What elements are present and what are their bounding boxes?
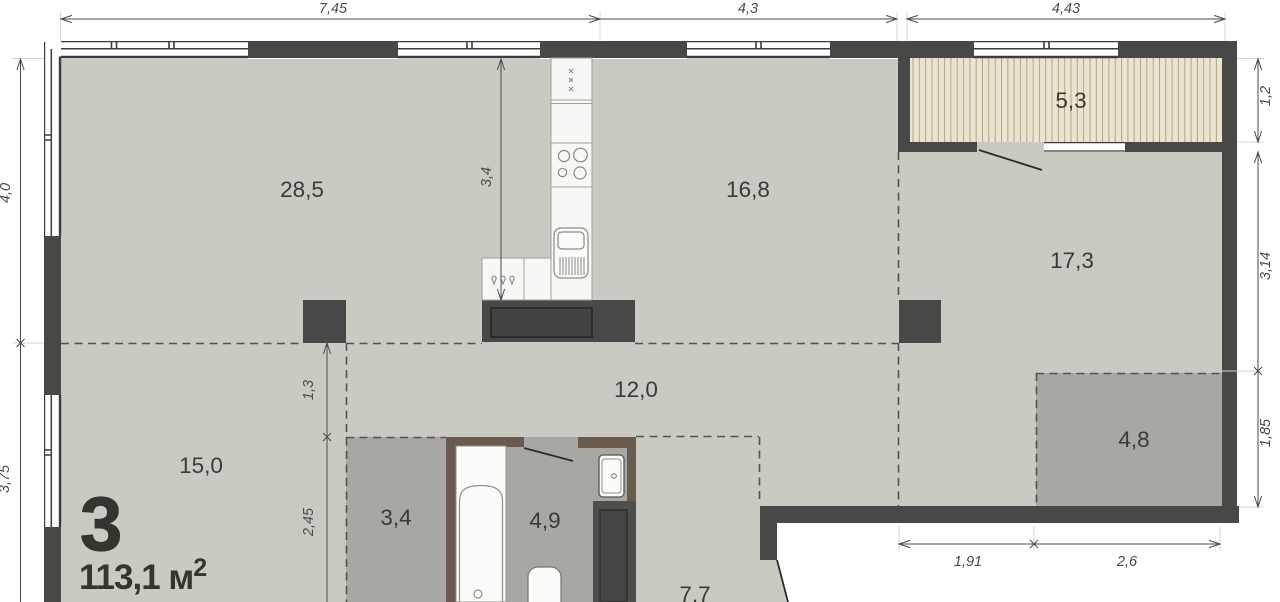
svg-text:3: 3 — [80, 482, 122, 567]
svg-text:4,9: 4,9 — [529, 508, 560, 533]
svg-text:4,43: 4,43 — [1052, 1, 1080, 17]
svg-text:17,3: 17,3 — [1050, 248, 1094, 273]
svg-text:2,6: 2,6 — [1116, 554, 1138, 570]
svg-text:12,0: 12,0 — [614, 377, 658, 402]
svg-text:113,1 м2: 113,1 м2 — [79, 554, 206, 597]
svg-text:2,45: 2,45 — [301, 507, 317, 537]
svg-text:3,75: 3,75 — [0, 464, 13, 493]
svg-text:5,3: 5,3 — [1055, 88, 1086, 113]
svg-text:4,8: 4,8 — [1118, 427, 1149, 452]
svg-text:1,3: 1,3 — [301, 380, 317, 400]
svg-text:1,91: 1,91 — [954, 554, 982, 570]
svg-text:7,45: 7,45 — [319, 1, 348, 17]
svg-text:3,14: 3,14 — [1258, 252, 1274, 280]
svg-text:7,7: 7,7 — [679, 582, 710, 602]
svg-text:4,3: 4,3 — [738, 1, 758, 17]
svg-text:28,5: 28,5 — [280, 177, 324, 202]
svg-text:3,4: 3,4 — [479, 167, 495, 187]
svg-text:16,8: 16,8 — [726, 177, 770, 202]
svg-text:4,0: 4,0 — [0, 183, 14, 203]
svg-text:1,85: 1,85 — [1258, 418, 1274, 447]
svg-text:3,4: 3,4 — [380, 505, 411, 530]
svg-text:15,0: 15,0 — [179, 453, 223, 478]
svg-text:1,2: 1,2 — [1258, 86, 1274, 106]
